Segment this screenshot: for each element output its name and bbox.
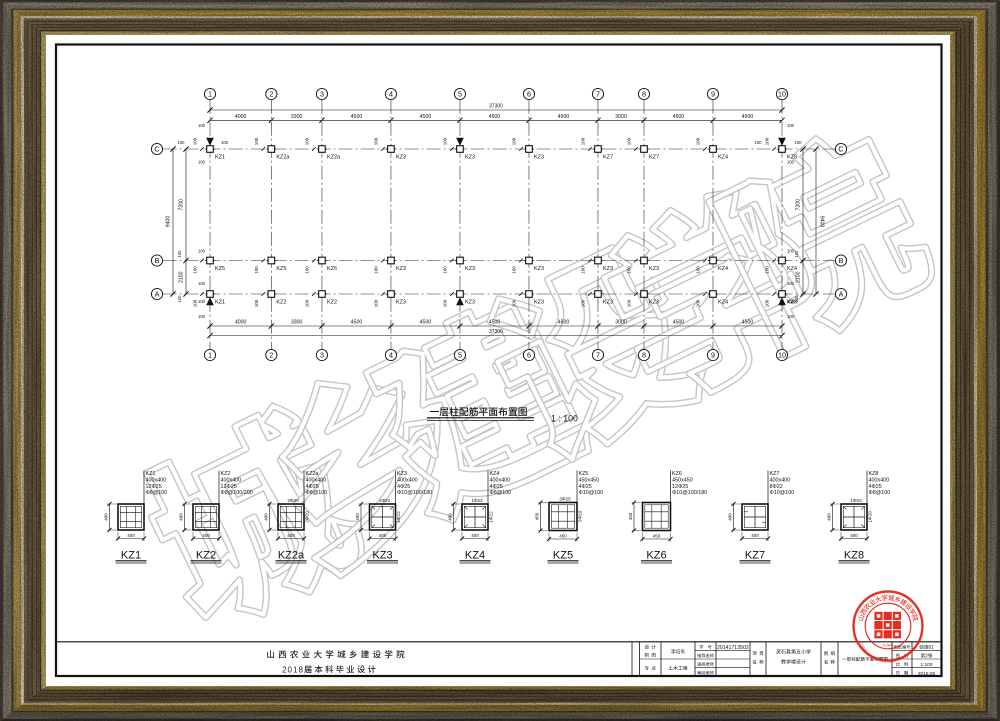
svg-text:4500: 4500: [558, 114, 570, 120]
svg-text:100: 100: [755, 140, 763, 145]
svg-text:100: 100: [373, 137, 378, 145]
svg-text:Φ8@100/200: Φ8@100/200: [221, 490, 253, 496]
svg-text:100: 100: [626, 299, 631, 307]
svg-text:450x450: 450x450: [672, 477, 693, 483]
svg-text:100: 100: [177, 250, 182, 258]
svg-text:100: 100: [198, 299, 206, 304]
svg-text:100: 100: [442, 299, 447, 307]
svg-text:5: 5: [458, 351, 462, 360]
svg-text:2Φ20: 2Φ20: [578, 510, 583, 522]
svg-text:37300: 37300: [489, 329, 503, 335]
svg-text:KZ7: KZ7: [649, 154, 659, 160]
svg-text:7200: 7200: [179, 199, 185, 211]
svg-text:100: 100: [787, 314, 795, 319]
svg-text:450: 450: [535, 512, 540, 520]
svg-text:3: 3: [320, 90, 324, 99]
svg-text:KZ5: KZ5: [553, 550, 573, 562]
svg-text:4: 4: [389, 351, 393, 360]
svg-text:4500: 4500: [351, 319, 363, 325]
svg-text:KZ6: KZ6: [646, 550, 666, 562]
svg-text:8Φ22: 8Φ22: [770, 484, 783, 490]
svg-text:9: 9: [711, 351, 715, 360]
svg-text:100: 100: [626, 137, 631, 145]
svg-text:KZ2: KZ2: [196, 550, 216, 562]
svg-text:100: 100: [580, 266, 585, 274]
svg-text:100: 100: [764, 299, 769, 307]
svg-text:450: 450: [559, 534, 567, 539]
svg-text:100: 100: [695, 299, 700, 307]
svg-text:100: 100: [794, 250, 799, 258]
svg-text:4500: 4500: [742, 114, 754, 120]
svg-text:1Φ20: 1Φ20: [850, 498, 862, 503]
svg-text:100: 100: [221, 140, 229, 145]
svg-text:100: 100: [795, 140, 803, 145]
svg-text:B: B: [155, 256, 160, 265]
svg-text:KZ5: KZ5: [276, 266, 286, 272]
svg-text:KZ4: KZ4: [718, 266, 728, 272]
svg-text:100: 100: [193, 137, 198, 145]
svg-text:6: 6: [527, 90, 531, 99]
svg-text:100: 100: [787, 160, 795, 165]
svg-text:C: C: [838, 145, 843, 154]
svg-text:12Φ25: 12Φ25: [672, 484, 688, 490]
svg-text:100: 100: [580, 299, 585, 307]
svg-text:2018.05: 2018.05: [918, 671, 936, 677]
svg-text:12Φ25: 12Φ25: [221, 484, 237, 490]
svg-text:100: 100: [626, 266, 631, 274]
svg-text:2018: 2018: [282, 665, 304, 674]
svg-text:2100: 2100: [796, 271, 802, 283]
svg-text:400x400: 400x400: [397, 477, 418, 483]
svg-text:1 : 100: 1 : 100: [551, 414, 578, 424]
svg-text:KZ1: KZ1: [215, 154, 225, 160]
svg-text:KZ2: KZ2: [276, 299, 286, 305]
svg-text:KZ8: KZ8: [869, 471, 879, 477]
svg-text:4500: 4500: [558, 319, 570, 325]
svg-text:KZ3: KZ3: [465, 266, 475, 272]
svg-text:9: 9: [711, 90, 715, 99]
svg-text:100: 100: [442, 137, 447, 145]
svg-text:KZ3: KZ3: [603, 266, 613, 272]
svg-text:KZ2a: KZ2a: [278, 550, 305, 562]
svg-text:450: 450: [628, 512, 633, 520]
svg-text:4Φ25: 4Φ25: [869, 484, 882, 490]
svg-text:KZ3: KZ3: [397, 471, 407, 477]
svg-text:7: 7: [596, 351, 600, 360]
svg-text:100: 100: [794, 295, 799, 303]
svg-text:B: B: [839, 256, 844, 265]
svg-text:100: 100: [193, 266, 198, 274]
svg-text:100: 100: [442, 266, 447, 274]
svg-text:4500: 4500: [351, 114, 363, 120]
svg-text:Φ10@100: Φ10@100: [579, 490, 604, 496]
svg-text:1Φ22: 1Φ22: [489, 511, 494, 523]
svg-text:7200: 7200: [796, 199, 802, 211]
svg-text:4500: 4500: [489, 319, 501, 325]
svg-text:9400: 9400: [166, 216, 172, 228]
svg-text:100: 100: [304, 299, 309, 307]
svg-text:10: 10: [778, 351, 786, 360]
svg-text:KZ6: KZ6: [327, 266, 337, 272]
svg-text:4500: 4500: [673, 114, 685, 120]
svg-text:100: 100: [511, 266, 516, 274]
svg-text:KZ6: KZ6: [672, 471, 682, 477]
svg-text:400x400: 400x400: [869, 477, 890, 483]
svg-text:4500: 4500: [489, 114, 501, 120]
svg-text:100: 100: [511, 299, 516, 307]
svg-text:100: 100: [254, 137, 259, 145]
svg-text:100: 100: [764, 137, 769, 145]
svg-text:1: 1: [208, 351, 212, 360]
svg-text:3Φ25: 3Φ25: [559, 497, 571, 502]
svg-text:C: C: [154, 145, 159, 154]
svg-text:100: 100: [373, 266, 378, 274]
svg-text:400: 400: [127, 533, 135, 538]
svg-text:100: 100: [254, 299, 259, 307]
svg-text:KZ7: KZ7: [603, 154, 613, 160]
svg-text:KZ8: KZ8: [844, 550, 864, 562]
svg-text:400x400: 400x400: [146, 477, 167, 483]
svg-text:KZ5: KZ5: [215, 266, 225, 272]
svg-text:100: 100: [304, 137, 309, 145]
svg-text:1Φ20: 1Φ20: [868, 511, 873, 523]
svg-text:2: 2: [269, 351, 273, 360]
svg-text:KZ3: KZ3: [372, 550, 392, 562]
svg-text:1Φ22: 1Φ22: [396, 511, 401, 523]
svg-text:KZ3: KZ3: [465, 299, 475, 305]
svg-text:KZ3: KZ3: [534, 266, 544, 272]
svg-text:KZ2a: KZ2a: [306, 471, 319, 477]
svg-text:Φ8@100: Φ8@100: [490, 490, 512, 496]
svg-text:2100: 2100: [179, 271, 185, 283]
svg-text:4500: 4500: [420, 319, 432, 325]
svg-text:KZ3: KZ3: [534, 154, 544, 160]
svg-text:6: 6: [527, 351, 531, 360]
svg-text:12Φ25: 12Φ25: [146, 484, 162, 490]
svg-text:400: 400: [104, 513, 109, 521]
svg-text:2Φ20: 2Φ20: [305, 511, 310, 523]
svg-text:400: 400: [202, 533, 210, 538]
svg-text:20141713502: 20141713502: [717, 645, 749, 651]
svg-text:100: 100: [580, 137, 585, 145]
svg-text:KZ1: KZ1: [146, 471, 156, 477]
svg-text:100: 100: [178, 140, 186, 145]
svg-text:KZ5: KZ5: [579, 471, 589, 477]
svg-text:3300: 3300: [291, 114, 303, 120]
svg-text:9400: 9400: [819, 216, 825, 228]
svg-text:2Φ20: 2Φ20: [287, 498, 299, 503]
svg-text:Φ8@100: Φ8@100: [146, 490, 168, 496]
svg-text:400: 400: [379, 533, 387, 538]
svg-text:KZ2: KZ2: [221, 471, 231, 477]
svg-text:KZ4: KZ4: [490, 471, 500, 477]
svg-text:KZ3: KZ3: [396, 266, 406, 272]
svg-text:Φ10@100/180: Φ10@100/180: [397, 490, 432, 496]
svg-text:400: 400: [355, 513, 360, 521]
svg-text:KZ2a: KZ2a: [327, 154, 341, 160]
svg-text:100: 100: [193, 299, 198, 307]
svg-text:400: 400: [287, 533, 295, 538]
svg-text:100: 100: [198, 314, 206, 319]
svg-text:KZ3: KZ3: [534, 299, 544, 305]
svg-text:100: 100: [787, 123, 795, 128]
svg-text:100: 100: [198, 160, 206, 165]
svg-text:4500: 4500: [420, 114, 432, 120]
svg-text:4500: 4500: [673, 319, 685, 325]
svg-text:37300: 37300: [489, 104, 503, 110]
svg-text:2: 2: [269, 90, 273, 99]
svg-text:3000: 3000: [615, 319, 627, 325]
svg-text:400: 400: [179, 513, 184, 521]
svg-text:400x400: 400x400: [306, 477, 327, 483]
svg-text:KZ2a: KZ2a: [276, 154, 290, 160]
svg-text:KZ4: KZ4: [718, 299, 728, 305]
svg-text:5: 5: [458, 90, 462, 99]
svg-text:450: 450: [653, 534, 661, 539]
svg-text:3000: 3000: [615, 114, 627, 120]
svg-text:100: 100: [198, 281, 206, 286]
svg-text:1: 1: [208, 90, 212, 99]
svg-text:100: 100: [764, 266, 769, 274]
svg-text:KZ1: KZ1: [121, 550, 141, 562]
svg-text:4Φ25: 4Φ25: [579, 484, 592, 490]
svg-text:100: 100: [787, 281, 795, 286]
svg-text:100: 100: [304, 266, 309, 274]
svg-text:3: 3: [320, 351, 324, 360]
svg-text:Φ8@100: Φ8@100: [306, 490, 328, 496]
svg-text:1:100: 1:100: [920, 662, 932, 668]
svg-text:KZ7: KZ7: [745, 550, 765, 562]
svg-text:A: A: [839, 290, 844, 299]
svg-text:100: 100: [198, 249, 206, 254]
svg-text:KZ2: KZ2: [327, 299, 337, 305]
svg-text:4Φ25: 4Φ25: [490, 484, 503, 490]
svg-text:400x400: 400x400: [490, 477, 511, 483]
svg-text:4500: 4500: [742, 319, 754, 325]
svg-text:Φ10@100/180: Φ10@100/180: [672, 490, 707, 496]
svg-text:4Φ25: 4Φ25: [306, 484, 319, 490]
svg-text:1Φ22: 1Φ22: [471, 498, 483, 503]
svg-text:100: 100: [695, 137, 700, 145]
svg-text:KZ3: KZ3: [603, 299, 613, 305]
svg-text:Φ8@100: Φ8@100: [869, 490, 891, 496]
svg-text:·CUWC·: ·CUWC·: [882, 644, 895, 648]
svg-text:4: 4: [389, 90, 393, 99]
svg-text:3300: 3300: [291, 319, 303, 325]
svg-text:A: A: [155, 290, 160, 299]
svg-text:10: 10: [778, 90, 786, 99]
svg-text:400x400: 400x400: [770, 477, 791, 483]
svg-text:400: 400: [448, 513, 453, 521]
svg-text:KZ3: KZ3: [465, 154, 475, 160]
svg-text:KZ3: KZ3: [649, 299, 659, 305]
svg-text:8: 8: [642, 90, 646, 99]
svg-text:400: 400: [827, 513, 832, 521]
svg-text:100: 100: [177, 295, 182, 303]
svg-text:KZ3: KZ3: [649, 266, 659, 272]
svg-text:400: 400: [264, 513, 269, 521]
svg-text:400: 400: [728, 513, 733, 521]
svg-text:Φ10@100: Φ10@100: [770, 490, 795, 496]
svg-text:100: 100: [511, 137, 516, 145]
svg-text:KZ3: KZ3: [396, 299, 406, 305]
svg-text:400: 400: [471, 533, 479, 538]
svg-text:400: 400: [850, 533, 858, 538]
svg-text:4000: 4000: [235, 319, 247, 325]
svg-text:400: 400: [751, 533, 759, 538]
svg-text:KZ4: KZ4: [787, 266, 797, 272]
svg-text:KZ4: KZ4: [718, 154, 728, 160]
svg-text:1Φ22: 1Φ22: [379, 498, 391, 503]
svg-text:450x450: 450x450: [579, 477, 600, 483]
svg-text:4Φ25: 4Φ25: [397, 484, 410, 490]
svg-text:KZ7: KZ7: [770, 471, 780, 477]
svg-text:8: 8: [642, 351, 646, 360]
svg-text:7: 7: [596, 90, 600, 99]
svg-text:100: 100: [198, 123, 206, 128]
svg-text:100: 100: [254, 266, 259, 274]
svg-text:KZ3: KZ3: [396, 154, 406, 160]
svg-text:4000: 4000: [235, 114, 247, 120]
svg-text:KZ1: KZ1: [215, 299, 225, 305]
svg-text:400x400: 400x400: [221, 477, 242, 483]
svg-text:KZ4: KZ4: [465, 550, 485, 562]
svg-text:100: 100: [695, 266, 700, 274]
svg-text:100: 100: [373, 299, 378, 307]
